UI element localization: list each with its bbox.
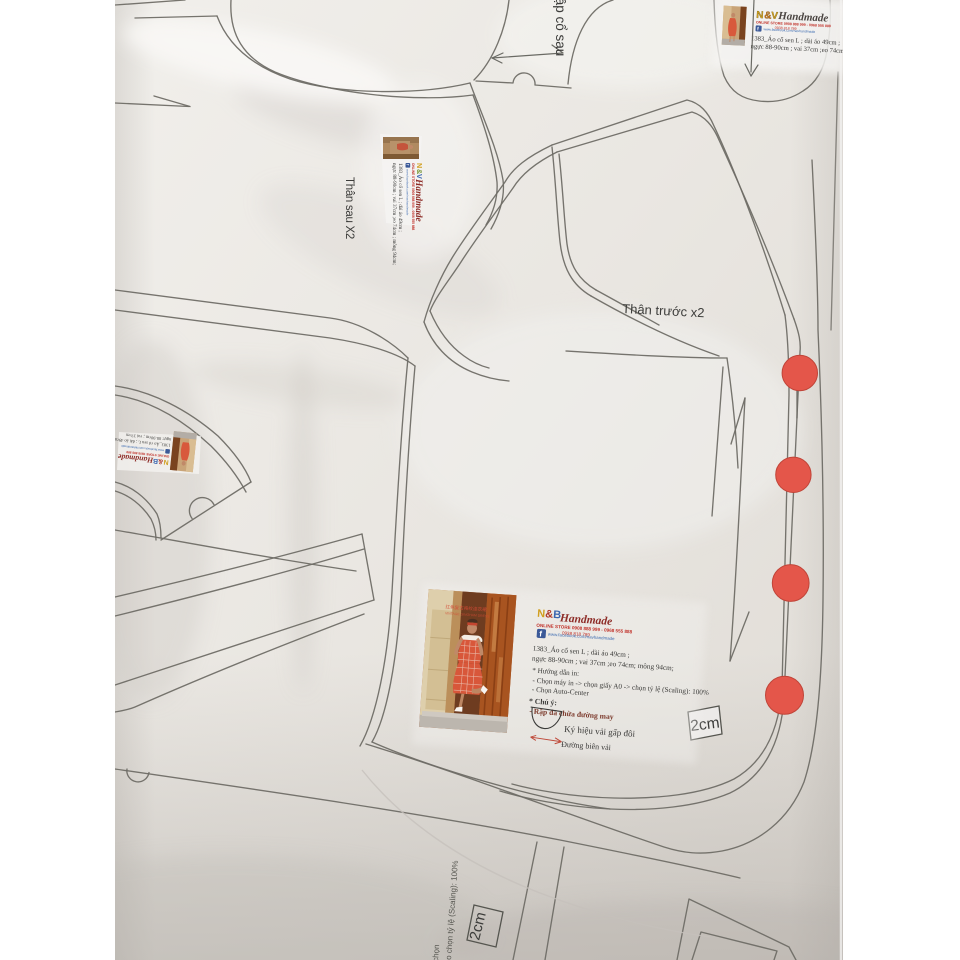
svg-text:ONLINE STORE 0908 888 999 - 09: ONLINE STORE 0908 888 999 - 0968 555 888	[411, 163, 415, 230]
svg-text:Rập cổ sau: Rập cổ sau	[553, 0, 568, 56]
svg-text:ngực 88-90cm ; vai 37cm ;eo 74: ngực 88-90cm ; vai 37cm ;eo 74cm ; mông …	[391, 163, 397, 266]
svg-text:www.facebook.com/navhandmade: www.facebook.com/navhandmade	[405, 169, 409, 216]
svg-text:chọn: chọn	[431, 944, 441, 960]
svg-text:N: N	[415, 163, 424, 168]
svg-text:Thân sau X2: Thân sau X2	[343, 177, 355, 239]
svg-text:1383_Áo cổ sen L ; dài áo 49cm: 1383_Áo cổ sen L ; dài áo 49cm ;	[397, 163, 405, 232]
